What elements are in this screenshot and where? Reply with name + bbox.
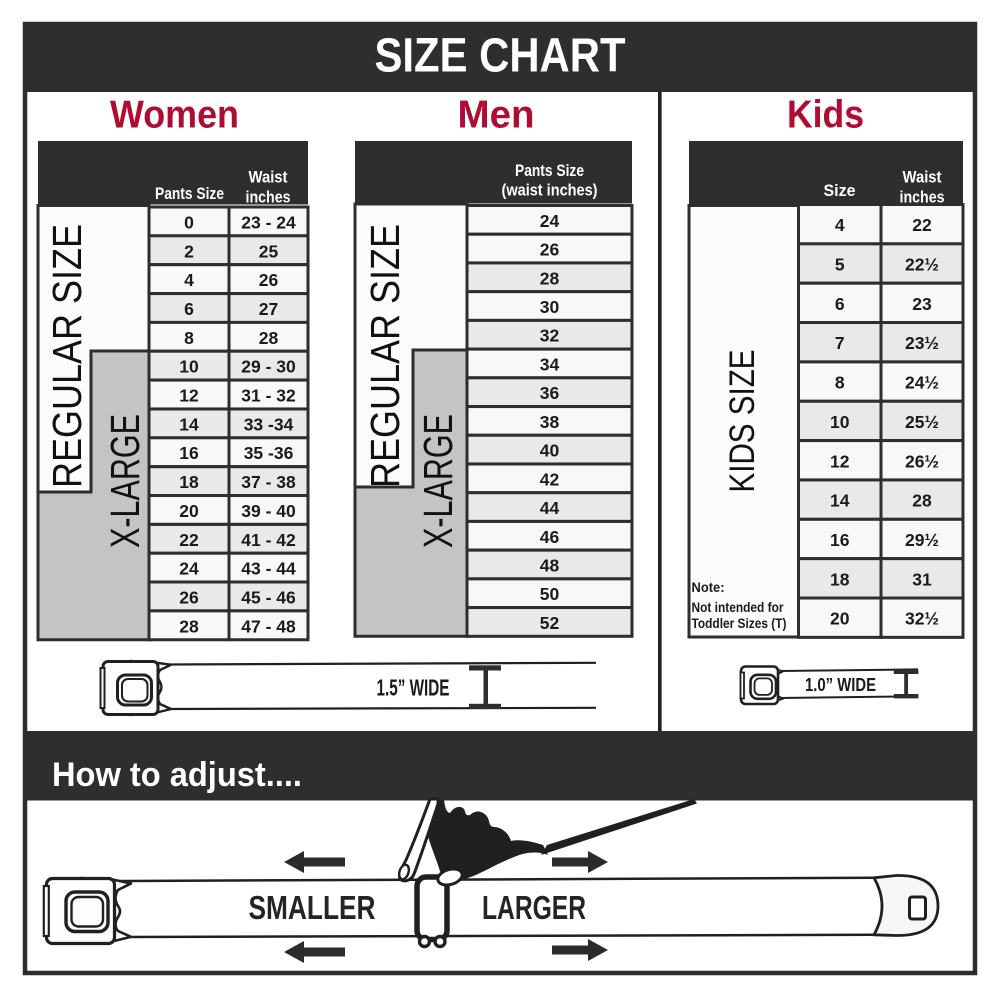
svg-text:24: 24 bbox=[179, 559, 199, 579]
svg-text:37 - 38: 37 - 38 bbox=[241, 472, 296, 492]
svg-text:X-LARGE: X-LARGE bbox=[415, 414, 461, 548]
svg-text:2: 2 bbox=[184, 241, 194, 261]
svg-text:Pants Size: Pants Size bbox=[515, 161, 584, 180]
svg-text:Toddler Sizes (T): Toddler Sizes (T) bbox=[692, 616, 787, 631]
svg-text:5: 5 bbox=[835, 255, 845, 275]
svg-text:41 - 42: 41 - 42 bbox=[241, 530, 296, 550]
svg-text:16: 16 bbox=[179, 443, 199, 463]
svg-text:35 -36: 35 -36 bbox=[244, 443, 294, 463]
svg-text:Note:: Note: bbox=[692, 580, 725, 595]
svg-text:10: 10 bbox=[179, 357, 199, 377]
svg-text:48: 48 bbox=[540, 556, 560, 576]
svg-text:8: 8 bbox=[184, 328, 194, 348]
svg-text:Waist: Waist bbox=[903, 168, 942, 187]
svg-text:Size: Size bbox=[824, 181, 856, 200]
svg-text:22: 22 bbox=[179, 530, 199, 550]
svg-text:52: 52 bbox=[540, 613, 560, 633]
svg-text:6: 6 bbox=[184, 299, 194, 319]
svg-text:43 - 44: 43 - 44 bbox=[241, 559, 296, 579]
svg-text:26½: 26½ bbox=[905, 451, 939, 471]
svg-text:Waist: Waist bbox=[249, 168, 288, 187]
svg-text:7: 7 bbox=[835, 333, 845, 353]
svg-text:How to adjust....: How to adjust.... bbox=[52, 756, 302, 794]
svg-text:28: 28 bbox=[912, 491, 932, 511]
svg-text:34: 34 bbox=[540, 354, 560, 374]
svg-text:22½: 22½ bbox=[905, 255, 939, 275]
svg-text:29½: 29½ bbox=[905, 530, 939, 550]
svg-text:20: 20 bbox=[179, 501, 199, 521]
svg-text:8: 8 bbox=[835, 373, 845, 393]
svg-text:38: 38 bbox=[540, 412, 560, 432]
svg-text:18: 18 bbox=[830, 569, 850, 589]
svg-text:4: 4 bbox=[835, 215, 845, 235]
svg-text:24: 24 bbox=[540, 211, 560, 231]
svg-text:0: 0 bbox=[184, 212, 194, 232]
svg-text:23½: 23½ bbox=[905, 333, 939, 353]
svg-text:45 - 46: 45 - 46 bbox=[241, 587, 296, 607]
svg-text:SIZE CHART: SIZE CHART bbox=[375, 30, 626, 83]
svg-text:40: 40 bbox=[540, 441, 560, 461]
svg-text:16: 16 bbox=[830, 530, 850, 550]
svg-text:23: 23 bbox=[912, 294, 932, 314]
svg-text:20: 20 bbox=[830, 609, 850, 629]
svg-text:18: 18 bbox=[179, 472, 199, 492]
svg-text:47 - 48: 47 - 48 bbox=[241, 616, 296, 636]
svg-text:Women: Women bbox=[110, 94, 239, 137]
svg-text:39 - 40: 39 - 40 bbox=[241, 501, 296, 521]
svg-text:REGULAR SIZE: REGULAR SIZE bbox=[44, 224, 90, 488]
svg-text:32½: 32½ bbox=[905, 609, 939, 629]
svg-text:6: 6 bbox=[835, 294, 845, 314]
svg-text:46: 46 bbox=[540, 527, 560, 547]
svg-text:14: 14 bbox=[179, 414, 199, 434]
svg-text:inches: inches bbox=[246, 188, 291, 207]
svg-text:REGULAR SIZE: REGULAR SIZE bbox=[362, 224, 408, 488]
svg-text:25: 25 bbox=[259, 241, 279, 261]
svg-text:30: 30 bbox=[540, 297, 560, 317]
svg-text:33 -34: 33 -34 bbox=[244, 414, 294, 434]
svg-text:26: 26 bbox=[179, 587, 199, 607]
svg-text:Kids: Kids bbox=[787, 94, 864, 137]
svg-text:50: 50 bbox=[540, 584, 560, 604]
svg-text:X-LARGE: X-LARGE bbox=[102, 414, 148, 548]
svg-text:31: 31 bbox=[912, 569, 932, 589]
svg-text:4: 4 bbox=[184, 270, 194, 290]
svg-text:29 - 30: 29 - 30 bbox=[241, 357, 296, 377]
svg-text:Men: Men bbox=[458, 94, 535, 137]
svg-text:12: 12 bbox=[179, 386, 199, 406]
svg-text:22: 22 bbox=[912, 215, 932, 235]
svg-text:36: 36 bbox=[540, 383, 560, 403]
svg-text:25½: 25½ bbox=[905, 412, 939, 432]
svg-text:28: 28 bbox=[179, 616, 199, 636]
svg-text:24½: 24½ bbox=[905, 373, 939, 393]
svg-text:LARGER: LARGER bbox=[482, 889, 586, 926]
svg-text:28: 28 bbox=[259, 328, 279, 348]
svg-text:12: 12 bbox=[830, 451, 850, 471]
svg-text:26: 26 bbox=[259, 270, 279, 290]
svg-text:31 - 32: 31 - 32 bbox=[241, 386, 296, 406]
svg-text:(waist inches): (waist inches) bbox=[502, 181, 598, 200]
svg-text:42: 42 bbox=[540, 469, 560, 489]
svg-text:10: 10 bbox=[830, 412, 850, 432]
svg-text:28: 28 bbox=[540, 268, 560, 288]
svg-text:1.5” WIDE: 1.5” WIDE bbox=[377, 675, 450, 701]
svg-text:14: 14 bbox=[830, 491, 850, 511]
svg-text:32: 32 bbox=[540, 326, 560, 346]
svg-text:Not intended for: Not intended for bbox=[692, 600, 785, 615]
svg-text:SMALLER: SMALLER bbox=[249, 889, 376, 926]
svg-text:Pants Size: Pants Size bbox=[155, 184, 224, 203]
svg-text:44: 44 bbox=[540, 498, 560, 518]
svg-text:27: 27 bbox=[259, 299, 278, 319]
svg-text:KIDS SIZE: KIDS SIZE bbox=[723, 350, 762, 493]
svg-text:23 - 24: 23 - 24 bbox=[241, 212, 296, 232]
svg-text:26: 26 bbox=[540, 240, 560, 260]
svg-text:1.0” WIDE: 1.0” WIDE bbox=[805, 675, 876, 695]
